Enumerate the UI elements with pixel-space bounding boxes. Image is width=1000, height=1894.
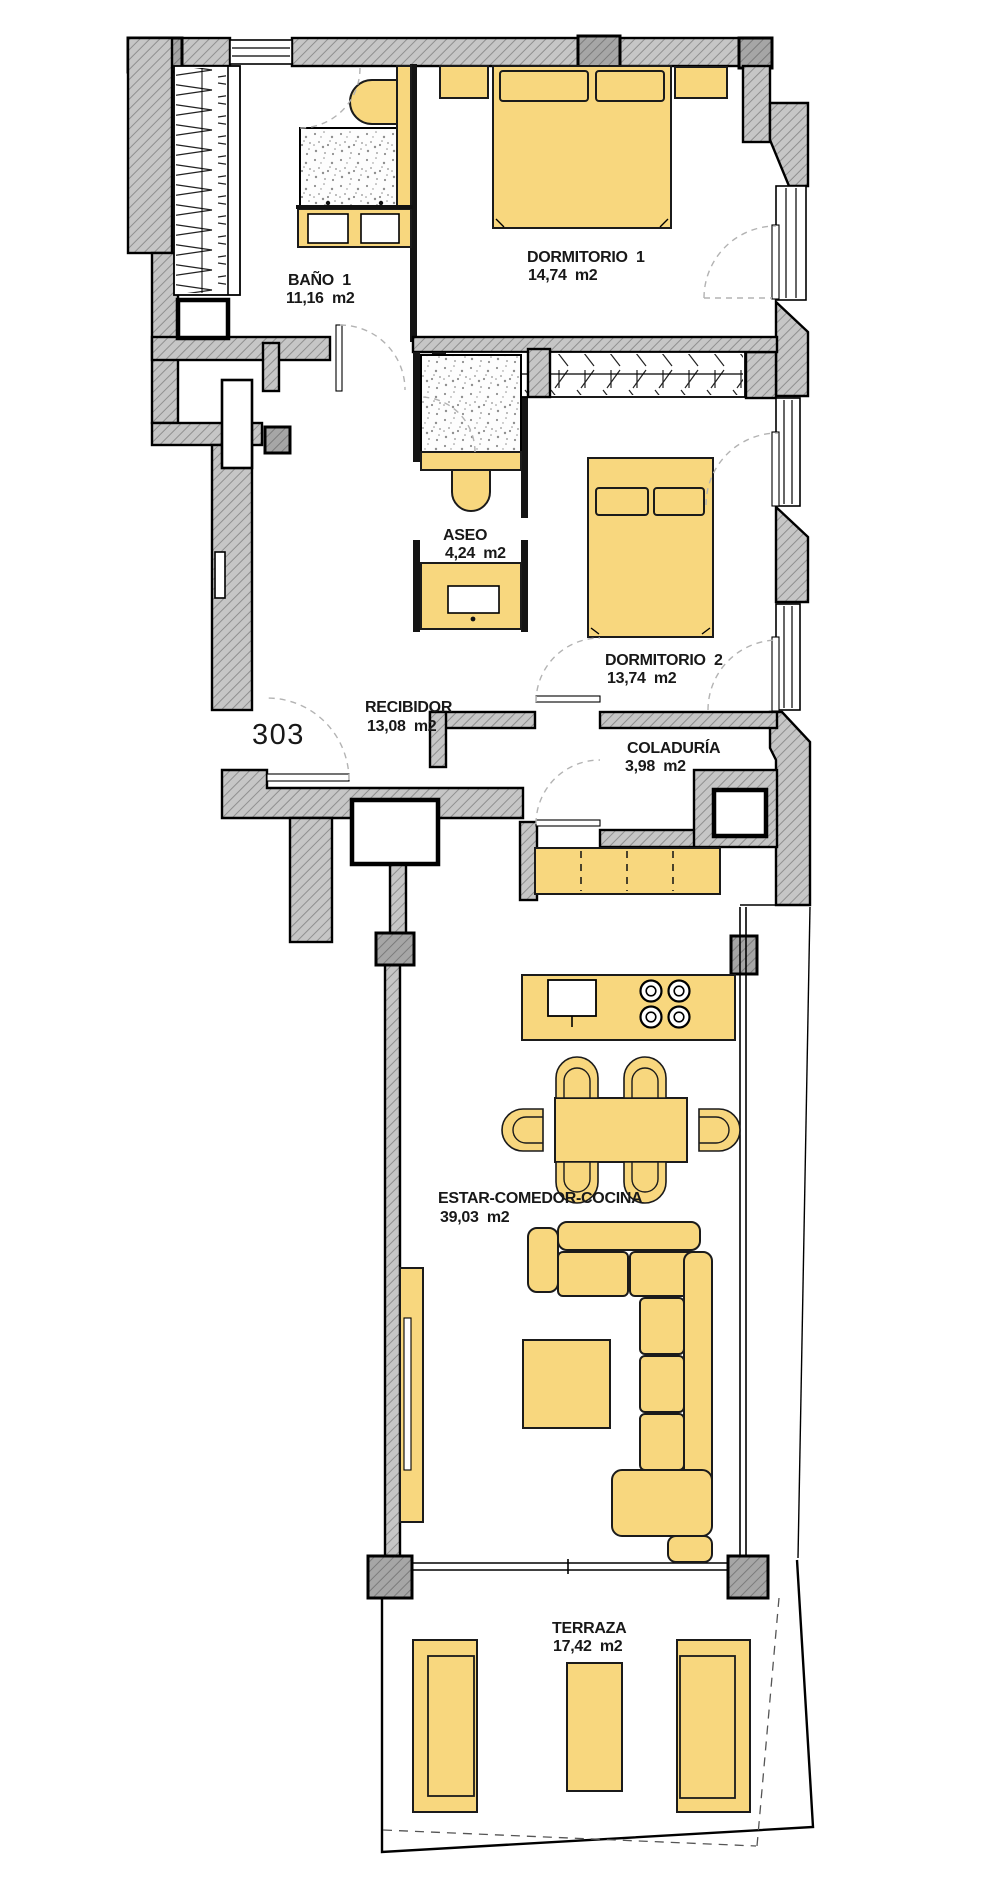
sofa-seat [668, 1536, 712, 1562]
room-area-dormitorio1: 14,74 m2 [528, 267, 598, 284]
dining-set [502, 1057, 740, 1203]
room-label-dormitorio1: DORMITORIO 1 [527, 249, 645, 266]
pillow [654, 488, 704, 515]
nightstand [440, 66, 488, 98]
room-label-estar: ESTAR-COMEDOR-COCINA [438, 1190, 643, 1207]
corner-pillar [739, 38, 772, 68]
dormitorio2-furniture [588, 458, 713, 637]
pillow [500, 71, 588, 101]
aseo-fixtures [421, 355, 521, 629]
room-area-aseo: 4,24 m2 [445, 545, 506, 562]
room-label-bano1: BAÑO 1 [288, 269, 351, 289]
dormitorio1-furniture [440, 66, 727, 228]
living-room-furniture [400, 1222, 712, 1562]
plot-boundary-dashed [757, 1598, 779, 1846]
window [776, 398, 800, 506]
door-swing-arc [704, 226, 776, 298]
coffee-table [523, 1340, 610, 1428]
sofa-back [558, 1222, 700, 1250]
pillow [596, 71, 664, 101]
sink [308, 214, 348, 243]
door-leaf [772, 637, 779, 711]
kitchen-fixtures [522, 848, 735, 1040]
pillar [376, 933, 414, 965]
room-label-recibidor: RECIBIDOR [365, 699, 453, 716]
door-leaf [772, 432, 779, 506]
sofa-seat [640, 1414, 684, 1470]
floorplan-drawing: BAÑO 1 11,16 m2 DORMITORIO 1 14,74 m2 AS… [0, 0, 1000, 1894]
shower [300, 128, 398, 206]
wardrobe-corridor [174, 66, 240, 295]
sun-lounger [413, 1640, 477, 1812]
duct-shaft [714, 790, 766, 836]
room-label-aseo: ASEO [443, 527, 487, 544]
sun-lounger [567, 1663, 622, 1791]
dining-chair [699, 1109, 740, 1151]
door-leaf [336, 325, 342, 391]
pillow [596, 488, 648, 515]
door-swing-arc [340, 325, 405, 390]
sun-lounger [677, 1640, 750, 1812]
room-area-terraza: 17,42 m2 [553, 1638, 623, 1655]
door-leaf [536, 696, 600, 702]
room-area-bano1: 11,16 m2 [286, 290, 355, 307]
duct-shaft [178, 300, 228, 338]
door-leaf [772, 225, 779, 299]
room-label-coladuria: COLADURÍA [627, 738, 721, 757]
room-label-terraza: TERRAZA [552, 1620, 627, 1637]
window [230, 40, 292, 64]
sofa-arm [528, 1228, 558, 1292]
window [776, 604, 800, 710]
door-swing-arc [536, 638, 600, 702]
dining-chair [556, 1057, 598, 1098]
room-area-recibidor: 13,08 m2 [367, 718, 437, 735]
dining-chair [624, 1057, 666, 1098]
sink [361, 214, 399, 243]
sofa-chaise [612, 1470, 712, 1536]
unit-number-label: 303 [252, 719, 305, 751]
sofa-seat [558, 1252, 628, 1296]
door-swing-arc [706, 433, 778, 505]
tv-screen [404, 1318, 411, 1470]
sofa-seat [640, 1298, 684, 1354]
toilet [452, 470, 490, 511]
door-swing-arc [536, 760, 600, 824]
room-area-coladuria: 3,98 m2 [625, 758, 686, 775]
nightstand [675, 67, 727, 98]
entry-door-leaf [267, 774, 349, 781]
duct-shaft [352, 800, 438, 864]
shower [421, 355, 521, 452]
floorplan-page: BAÑO 1 11,16 m2 DORMITORIO 1 14,74 m2 AS… [0, 0, 1000, 1894]
door-leaf [536, 820, 600, 826]
window [776, 186, 806, 300]
double-bed [588, 458, 713, 637]
dining-table [555, 1098, 687, 1162]
door-swing-arc [708, 640, 778, 710]
kitchen-sink [548, 980, 596, 1016]
toilet [350, 80, 397, 124]
dining-chair [502, 1109, 543, 1151]
pillar [368, 1556, 412, 1598]
pillar [731, 936, 757, 974]
sofa-seat [640, 1356, 684, 1412]
pillar [728, 1556, 768, 1598]
room-area-estar: 39,03 m2 [440, 1209, 510, 1226]
sink [448, 586, 499, 613]
room-label-dormitorio2: DORMITORIO 2 [605, 652, 723, 669]
room-area-dormitorio2: 13,74 m2 [607, 670, 677, 687]
